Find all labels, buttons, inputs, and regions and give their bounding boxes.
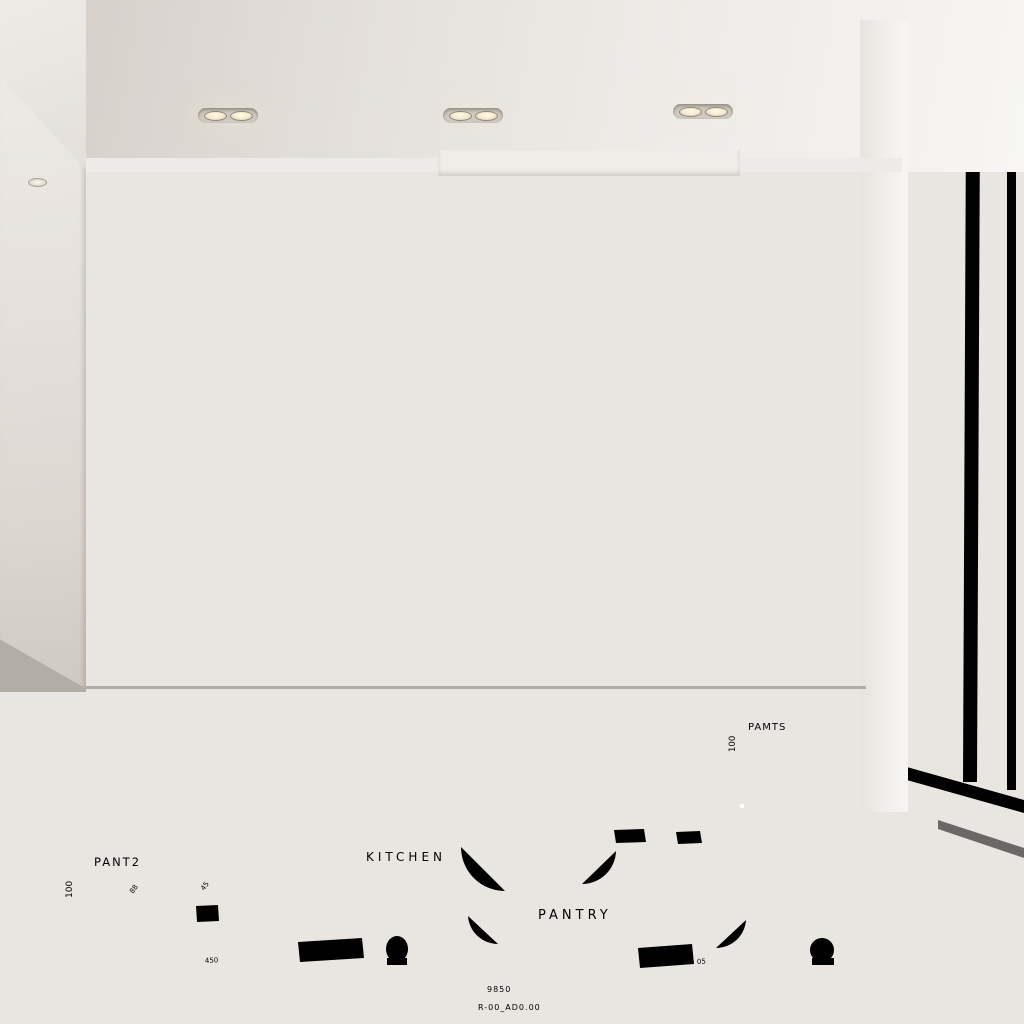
dimension-small-b: 88 [128,883,140,895]
spotlight-lamp-icon [679,107,702,117]
island-callout-label: PAMTS [748,722,786,733]
dimension-label-total: 9850 [487,985,511,994]
built-in-oven [210,396,320,526]
right-wall [860,20,908,812]
dimension-small-d: 05 [697,958,706,966]
blueprint-walls [150,834,962,968]
dimension-label-100-island: 100 [728,736,738,752]
room-label-kitchen: KITCHEN [366,850,446,864]
blueprint-labels: PANT2 100 KITCHEN PANTRY PAMTS 100 9850 … [65,722,786,1012]
ceiling-cove [438,150,740,176]
spotlight-lamp-icon [230,111,253,121]
spotlight-lamp-icon [475,111,498,121]
ceiling-spotlight-right [673,104,733,119]
hallway-spotlight-icon [28,178,47,187]
dimension-small-c: 450 [205,956,219,965]
blueprint-door-arcs [461,847,746,948]
dimension-small-a: 45 [199,880,211,892]
built-in-coffee-machine [326,396,438,526]
dimension-label-100-left: 100 [65,881,75,898]
drawing-reference-label: R-00_AD0.00 [478,1003,541,1012]
room-label-pantry: PANTRY [538,908,612,923]
ceiling-spotlight-left [198,108,258,123]
baseboard-shadow [86,686,866,689]
spotlight-lamp-icon [705,107,728,117]
spotlight-lamp-icon [204,111,227,121]
ceiling-spotlight-center [443,108,503,123]
kitchen-render: PANT2 100 KITCHEN PANTRY PAMTS 100 9850 … [0,0,1024,1024]
room-label-pant2: PANT2 [94,855,141,869]
blueprint-fixtures [196,829,834,968]
spotlight-lamp-icon [449,111,472,121]
